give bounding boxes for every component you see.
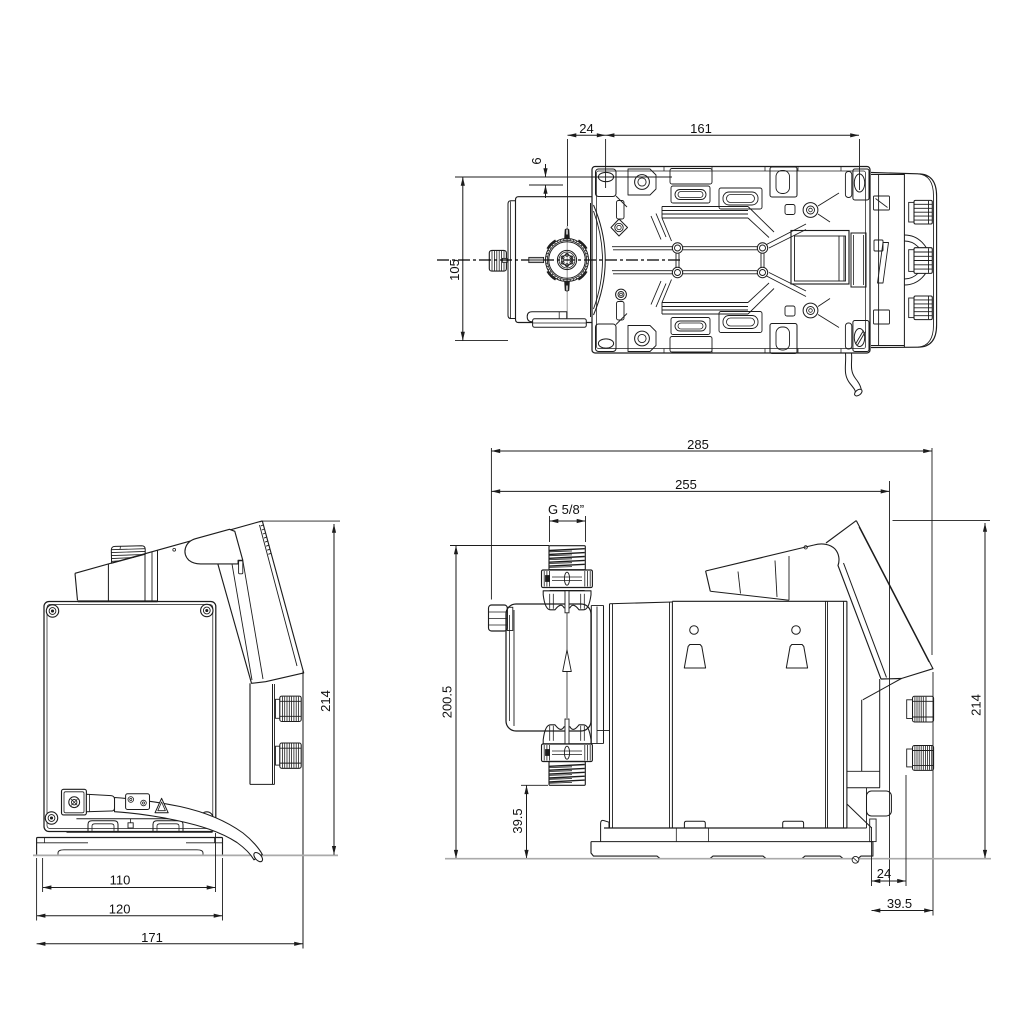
svg-text:105: 105 xyxy=(447,259,462,281)
svg-text:24: 24 xyxy=(877,866,891,881)
svg-text:285: 285 xyxy=(687,437,709,452)
svg-text:214: 214 xyxy=(969,694,984,716)
svg-text:200.5: 200.5 xyxy=(440,686,455,719)
svg-text:120: 120 xyxy=(109,901,131,916)
svg-text:171: 171 xyxy=(141,930,163,945)
svg-text:39.5: 39.5 xyxy=(510,808,525,833)
svg-text:6: 6 xyxy=(529,157,544,164)
svg-text:161: 161 xyxy=(690,121,712,136)
svg-text:39.5: 39.5 xyxy=(887,896,912,911)
svg-text:110: 110 xyxy=(110,873,131,888)
svg-text:G 5/8”: G 5/8” xyxy=(548,502,584,517)
svg-text:24: 24 xyxy=(579,121,593,136)
svg-text:255: 255 xyxy=(675,477,697,492)
svg-text:214: 214 xyxy=(318,690,333,712)
